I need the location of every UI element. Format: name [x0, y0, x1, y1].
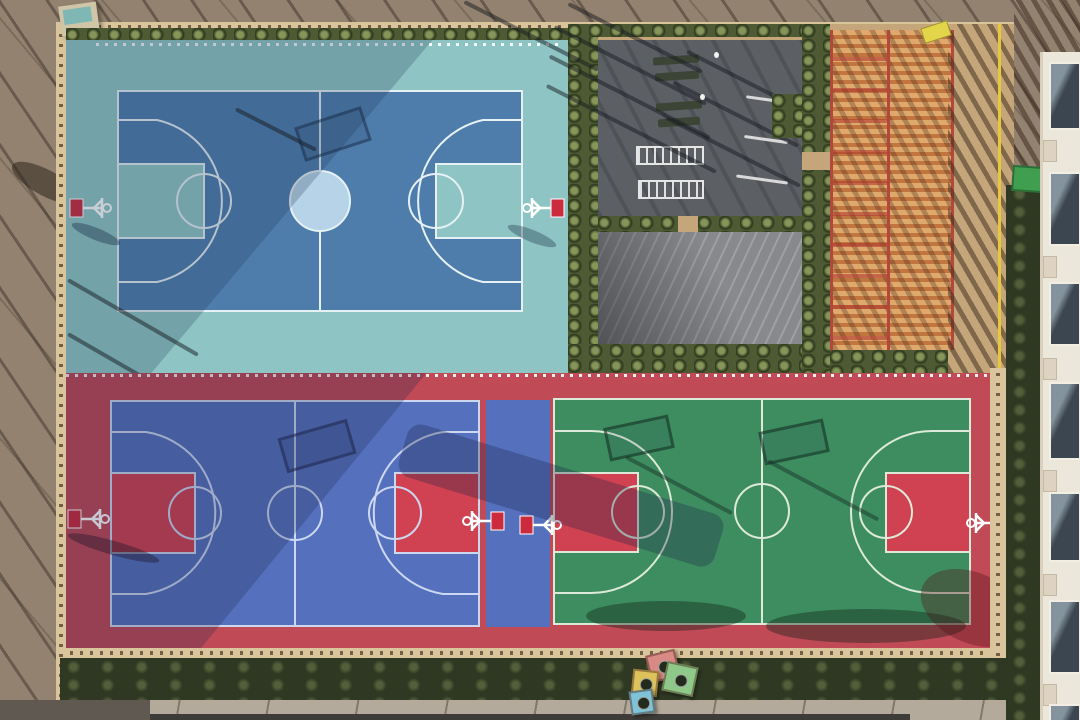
play-cube-blue	[628, 688, 655, 715]
building-window-2	[1049, 172, 1080, 246]
hoop-blue-right	[458, 503, 506, 539]
path-right-of-pergola	[948, 24, 1014, 373]
paved-plaza	[598, 232, 802, 344]
exercise-machine-3	[656, 100, 702, 111]
hedge-left-of-fitness	[568, 34, 598, 373]
pergola-cross-members	[833, 30, 889, 350]
curb-right	[990, 368, 1006, 660]
bottom-courts-section	[66, 373, 990, 655]
hedge-under-pergola	[830, 350, 948, 373]
pergola	[830, 30, 954, 350]
building-balcony-4	[1043, 470, 1057, 492]
building-window-6	[1049, 600, 1080, 674]
monkey-bars-2	[638, 180, 704, 199]
green-court-key-right	[886, 473, 970, 552]
top-right-section	[568, 24, 1014, 373]
hedge-notch-in-fitness	[772, 94, 802, 138]
hedge-mid-right	[698, 216, 802, 232]
curb-bottom-fence-marks	[70, 651, 986, 655]
building-balcony-2	[1043, 256, 1057, 278]
bushes-right-column	[1006, 185, 1042, 720]
residential-building	[1040, 52, 1080, 720]
building-window-3	[1049, 282, 1080, 346]
building-balcony-5	[1043, 574, 1057, 596]
curb-left-fence-marks	[59, 32, 63, 707]
guard-shed-roof	[63, 6, 93, 25]
pergola-center-beam	[887, 30, 890, 350]
building-balcony-3	[1043, 358, 1057, 380]
curb-bottom	[66, 648, 990, 658]
plaza-shadow	[598, 232, 802, 344]
hedge-before-pergola	[802, 24, 830, 373]
person-2	[700, 94, 705, 100]
cube-hole	[673, 672, 688, 687]
top-court-section	[66, 40, 568, 373]
curb-left	[56, 22, 66, 714]
curb-right-fence-marks	[996, 372, 1000, 656]
building-balcony-6	[1043, 684, 1057, 706]
yellow-curb-line	[998, 24, 1001, 373]
hedge-mid-left	[598, 216, 678, 232]
building-window-5	[1049, 492, 1080, 562]
footpath-dark-corner	[0, 700, 150, 720]
hoop-top-right	[518, 190, 566, 226]
aerial-sports-complex-photo	[0, 0, 1080, 720]
tree-shadow-green-1	[586, 601, 746, 631]
walkway-gap	[802, 152, 830, 170]
play-cube-green	[661, 661, 699, 697]
person-1	[714, 52, 719, 58]
building-window-1	[1049, 62, 1080, 130]
building-window-7	[1049, 704, 1080, 720]
building-window-4	[1049, 382, 1080, 460]
hedge-bottom-strip	[60, 658, 1010, 702]
building-balcony-1	[1043, 140, 1057, 162]
footpath-edge-shadow	[150, 714, 910, 720]
cube-hole	[636, 696, 651, 711]
